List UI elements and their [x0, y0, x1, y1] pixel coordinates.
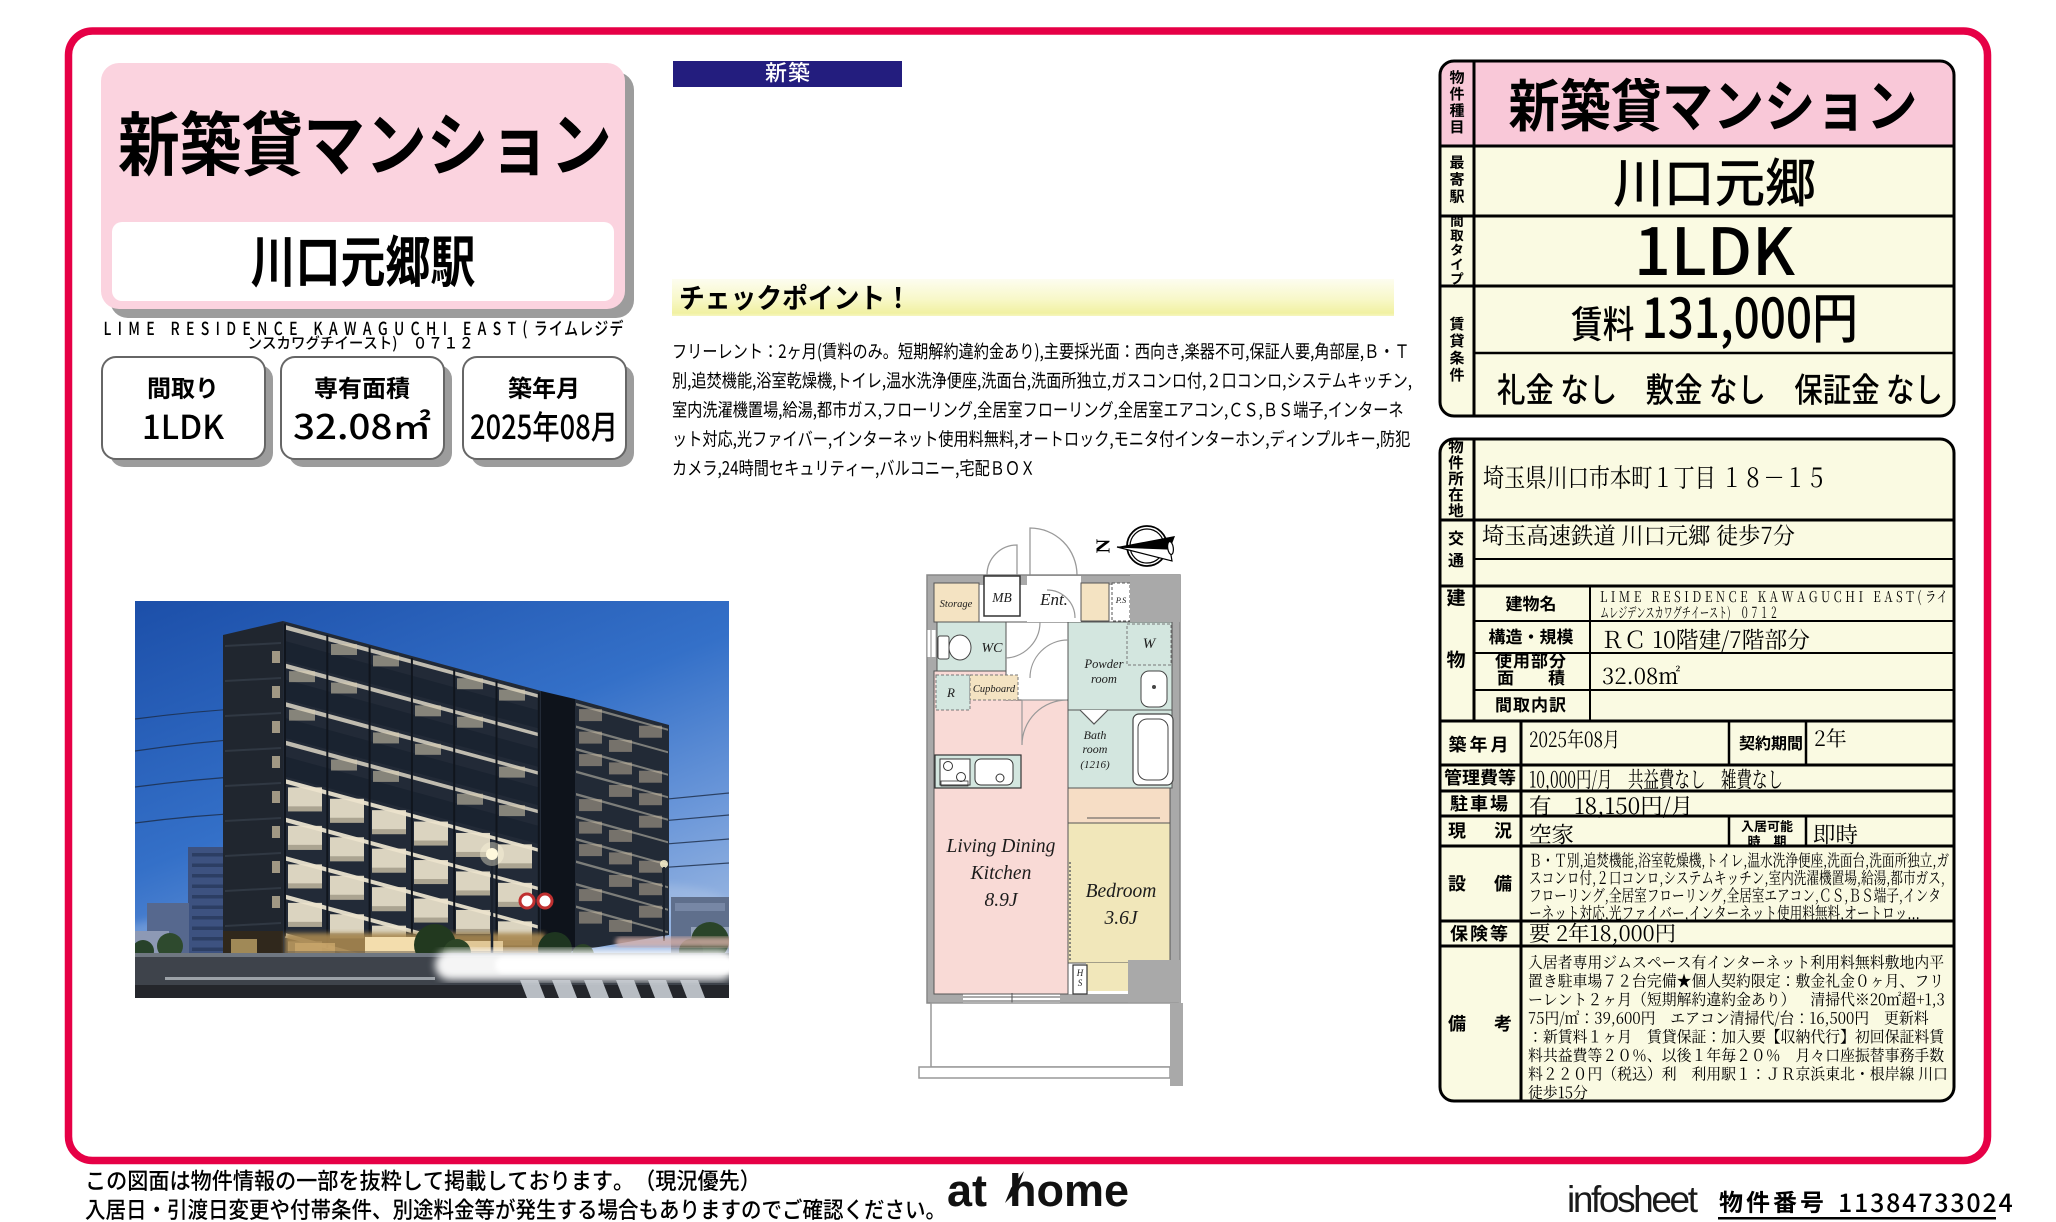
svg-text:(1216): (1216) [1080, 759, 1110, 771]
svg-text:Kitchen: Kitchen [970, 863, 1032, 884]
svg-text:room: room [1091, 672, 1117, 686]
svg-text:P.S: P.S [1115, 595, 1127, 605]
svg-text:Powder: Powder [1084, 657, 1124, 671]
svg-text:W: W [1143, 636, 1157, 652]
svg-text:N: N [1093, 538, 1115, 553]
svg-text:S: S [1078, 978, 1083, 988]
svg-text:room: room [1083, 742, 1108, 756]
svg-text:home: home [1009, 1165, 1129, 1216]
svg-text:8.9J: 8.9J [984, 890, 1018, 911]
svg-text:Storage: Storage [940, 599, 973, 610]
svg-text:infosheet: infosheet [1567, 1179, 1699, 1220]
svg-text:Ent.: Ent. [1039, 590, 1068, 609]
svg-text:WC: WC [982, 641, 1004, 656]
svg-text:Cupboard: Cupboard [973, 684, 1016, 695]
svg-text:Living Dining: Living Dining [946, 836, 1056, 857]
svg-text:MB: MB [991, 590, 1012, 605]
svg-text:Bath: Bath [1084, 728, 1107, 742]
svg-text:R: R [946, 685, 955, 700]
svg-text:at: at [947, 1165, 987, 1216]
svg-text:3.6J: 3.6J [1103, 908, 1138, 929]
svg-text:Bedroom: Bedroom [1086, 881, 1157, 902]
svg-text:H: H [1076, 968, 1084, 978]
